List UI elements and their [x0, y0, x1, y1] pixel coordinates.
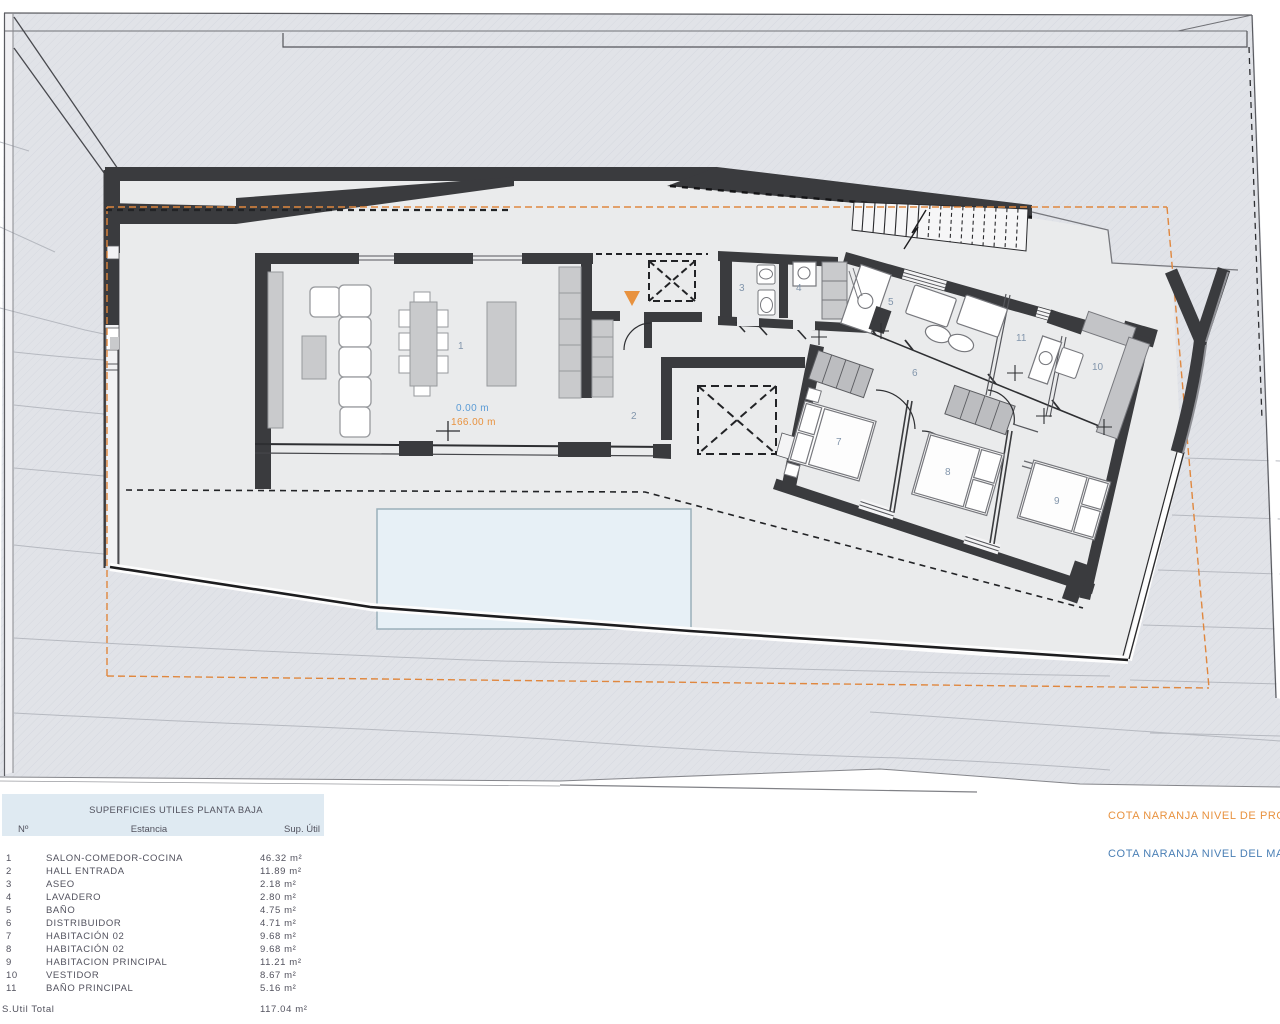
svg-text:8.67 m²: 8.67 m² [260, 970, 296, 981]
svg-text:117.04 m²: 117.04 m² [260, 1004, 307, 1015]
svg-text:Sup. Útil: Sup. Útil [284, 824, 320, 835]
svg-text:7: 7 [836, 437, 842, 448]
svg-text:5.16 m²: 5.16 m² [260, 983, 296, 994]
svg-text:4: 4 [796, 283, 802, 294]
svg-text:BAÑO PRINCIPAL: BAÑO PRINCIPAL [46, 983, 133, 994]
svg-text:SALON-COMEDOR-COCINA: SALON-COMEDOR-COCINA [46, 853, 183, 864]
svg-text:HALL ENTRADA: HALL ENTRADA [46, 866, 125, 877]
svg-text:11: 11 [1016, 333, 1027, 344]
svg-text:2: 2 [6, 866, 12, 877]
svg-text:10: 10 [6, 970, 18, 981]
svg-text:Estancia: Estancia [131, 824, 168, 835]
svg-text:3: 3 [6, 879, 12, 890]
svg-text:BAÑO: BAÑO [46, 905, 75, 916]
svg-text:9: 9 [6, 957, 12, 968]
svg-text:1: 1 [6, 853, 12, 864]
svg-text:ASEO: ASEO [46, 879, 75, 890]
svg-text:2.18 m²: 2.18 m² [260, 879, 296, 890]
svg-text:COTA NARANJA NIVEL DEL MAR: COTA NARANJA NIVEL DEL MAR [1108, 848, 1280, 860]
svg-text:166.00 m: 166.00 m [451, 417, 496, 428]
svg-text:8: 8 [945, 467, 951, 478]
svg-text:10: 10 [1092, 362, 1104, 373]
svg-text:8: 8 [6, 944, 12, 955]
svg-text:VESTIDOR: VESTIDOR [46, 970, 99, 981]
svg-text:11: 11 [6, 983, 17, 994]
svg-text:4.71 m²: 4.71 m² [260, 918, 296, 929]
svg-text:6: 6 [912, 368, 918, 379]
svg-text:9.68 m²: 9.68 m² [260, 931, 296, 942]
svg-text:0.00 m: 0.00 m [456, 403, 489, 414]
svg-text:4: 4 [6, 892, 12, 903]
svg-text:2: 2 [631, 411, 637, 422]
svg-text:SUPERFICIES UTILES PLANTA BAJA: SUPERFICIES UTILES PLANTA BAJA [89, 804, 263, 815]
svg-text:7: 7 [6, 931, 12, 942]
svg-text:Nº: Nº [18, 824, 29, 835]
svg-text:1: 1 [458, 341, 464, 352]
svg-text:HABITACIÓN 02: HABITACIÓN 02 [46, 931, 124, 942]
svg-text:DISTRIBUIDOR: DISTRIBUIDOR [46, 918, 121, 929]
svg-text:5: 5 [888, 297, 894, 308]
svg-text:2.80 m²: 2.80 m² [260, 892, 296, 903]
svg-text:9: 9 [1054, 496, 1060, 507]
svg-text:6: 6 [6, 918, 12, 929]
svg-text:5: 5 [6, 905, 12, 916]
svg-text:46.32 m²: 46.32 m² [260, 853, 302, 864]
svg-text:3: 3 [739, 283, 745, 294]
svg-text:HABITACION PRINCIPAL: HABITACION PRINCIPAL [46, 957, 167, 968]
svg-text:COTA NARANJA NIVEL DE PROYECTO: COTA NARANJA NIVEL DE PROYECTO [1108, 810, 1280, 822]
svg-text:11.21 m²: 11.21 m² [260, 957, 302, 968]
svg-text:11.89 m²: 11.89 m² [260, 866, 302, 877]
svg-text:HABITACIÓN 02: HABITACIÓN 02 [46, 944, 124, 955]
svg-text:LAVADERO: LAVADERO [46, 892, 101, 903]
svg-text:9.68 m²: 9.68 m² [260, 944, 296, 955]
svg-text:S.Util Total: S.Util Total [2, 1004, 54, 1015]
svg-text:4.75 m²: 4.75 m² [260, 905, 296, 916]
